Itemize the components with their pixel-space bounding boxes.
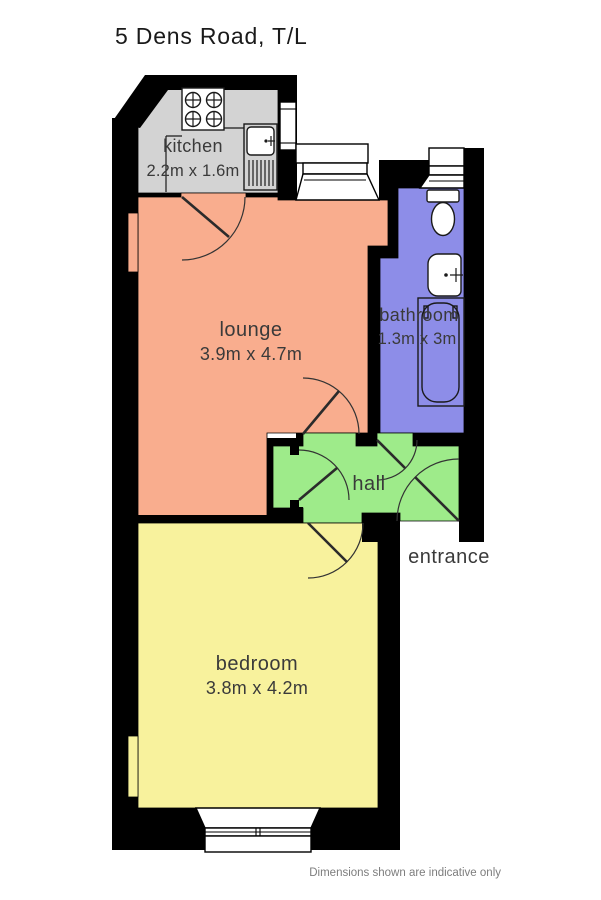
page-title: 5 Dens Road, T/L xyxy=(115,23,308,49)
kitchen-dims: 2.2m x 1.6m xyxy=(147,162,240,180)
bedroom-wall-recess xyxy=(128,736,138,797)
wall-bath-hall xyxy=(413,433,464,446)
lounge-dims: 3.9m x 4.7m xyxy=(200,344,302,364)
basin-icon xyxy=(428,254,463,296)
bathroom-dims: 1.3m x 3m xyxy=(378,330,457,348)
wall-right-lower xyxy=(459,446,484,542)
bedroom-label: bedroom xyxy=(216,653,298,675)
kitchen-window xyxy=(280,102,296,150)
wall-kitchen-partition-left xyxy=(138,193,181,197)
stove-icon xyxy=(182,88,224,130)
wall-lounge-bath-step xyxy=(368,246,398,258)
wall-lounge-hall xyxy=(356,433,377,446)
floorplan-drawing: kitchen 2.2m x 1.6m lounge 3.9m x 4.7m b… xyxy=(0,0,601,900)
wall-right-outer xyxy=(464,148,484,446)
wall-lounge-bedroom xyxy=(138,515,267,523)
lounge-wall-recess xyxy=(128,213,138,272)
wall-alcove-left xyxy=(267,438,273,517)
wall-bedroom-right xyxy=(378,519,400,850)
bedroom-bay-window xyxy=(196,808,320,852)
kitchen-label: kitchen xyxy=(163,136,223,156)
entrance-label: entrance xyxy=(408,546,490,568)
bathroom-label: bathroom xyxy=(379,305,458,325)
wall-bottom-left xyxy=(112,808,205,850)
wall-hall-stub-bottom xyxy=(290,500,299,523)
floorplan-page: kitchen 2.2m x 1.6m lounge 3.9m x 4.7m b… xyxy=(0,0,601,900)
lounge-label: lounge xyxy=(219,319,282,341)
bedroom-dims: 3.8m x 4.2m xyxy=(206,678,308,698)
wall-hall-bottom-pier xyxy=(299,507,303,523)
hall-label: hall xyxy=(352,473,385,495)
wall-bottom-right xyxy=(311,808,400,850)
wall-hall-hinge-pier xyxy=(296,433,303,446)
lounge-bay-window xyxy=(296,144,379,200)
disclaimer-text: Dimensions shown are indicative only xyxy=(309,867,501,879)
wall-kitchen-partition-right xyxy=(246,193,278,197)
